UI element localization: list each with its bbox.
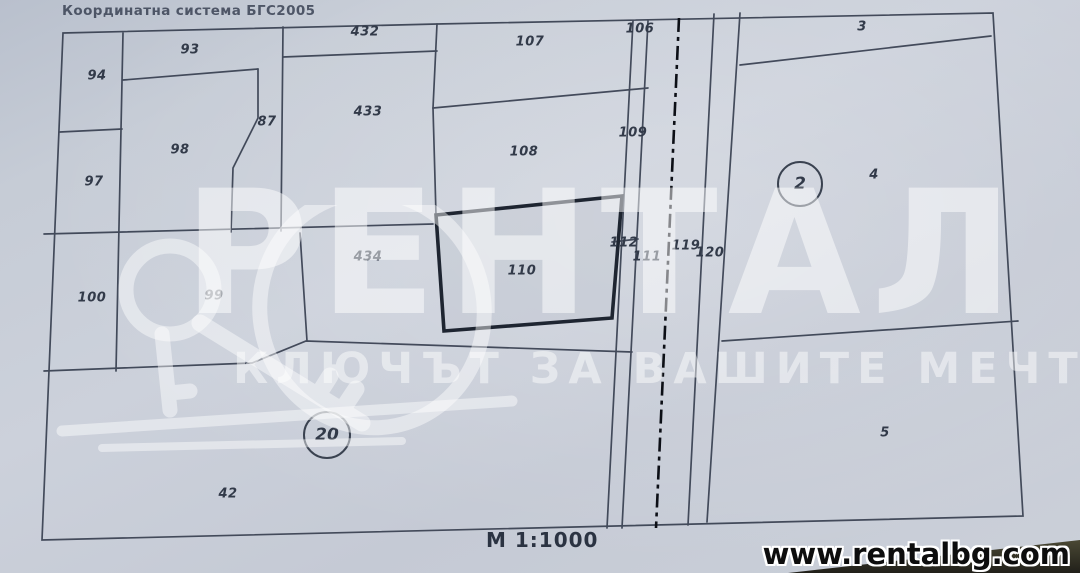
parcel-label-112: 112 — [610, 236, 639, 251]
parcel-label-3: 3 — [857, 20, 867, 35]
parcel-label-432: 432 — [351, 25, 380, 40]
parcel-label-109: 109 — [619, 126, 648, 141]
parcel-label-434: 434 — [354, 250, 383, 265]
map-scale-label: М 1:1000 — [486, 528, 598, 552]
parcel-label-97: 97 — [84, 175, 103, 190]
parcel-label-120: 120 — [696, 246, 725, 261]
cadastral-map-photo: Координатна система БГС2005 М 1:1000 949… — [0, 0, 1080, 573]
parcel-label-5: 5 — [880, 426, 890, 441]
parcel-label-111: 111 — [633, 250, 662, 265]
parcel-label-433: 433 — [354, 105, 383, 120]
parcel-label-98: 98 — [170, 143, 189, 158]
parcel-label-106: 106 — [626, 22, 655, 37]
parcel-label-107: 107 — [516, 35, 545, 50]
parcel-label-87: 87 — [257, 115, 276, 130]
parcel-label-4: 4 — [869, 168, 879, 183]
parcel-boundaries — [0, 0, 1080, 573]
circled-parcel-label-20: 20 — [303, 411, 351, 459]
parcel-label-99: 99 — [204, 289, 223, 304]
parcel-label-94: 94 — [87, 69, 106, 84]
circled-parcel-label-2: 2 — [777, 161, 823, 207]
parcel-label-42: 42 — [218, 487, 237, 502]
parcel-label-93: 93 — [180, 43, 199, 58]
parcel-label-108: 108 — [510, 145, 539, 160]
parcel-label-110: 110 — [508, 264, 537, 279]
coordinate-system-label: Координатна система БГС2005 — [62, 3, 315, 19]
parcel-label-100: 100 — [78, 291, 107, 306]
website-url: www.rentalbg.com — [763, 537, 1070, 571]
